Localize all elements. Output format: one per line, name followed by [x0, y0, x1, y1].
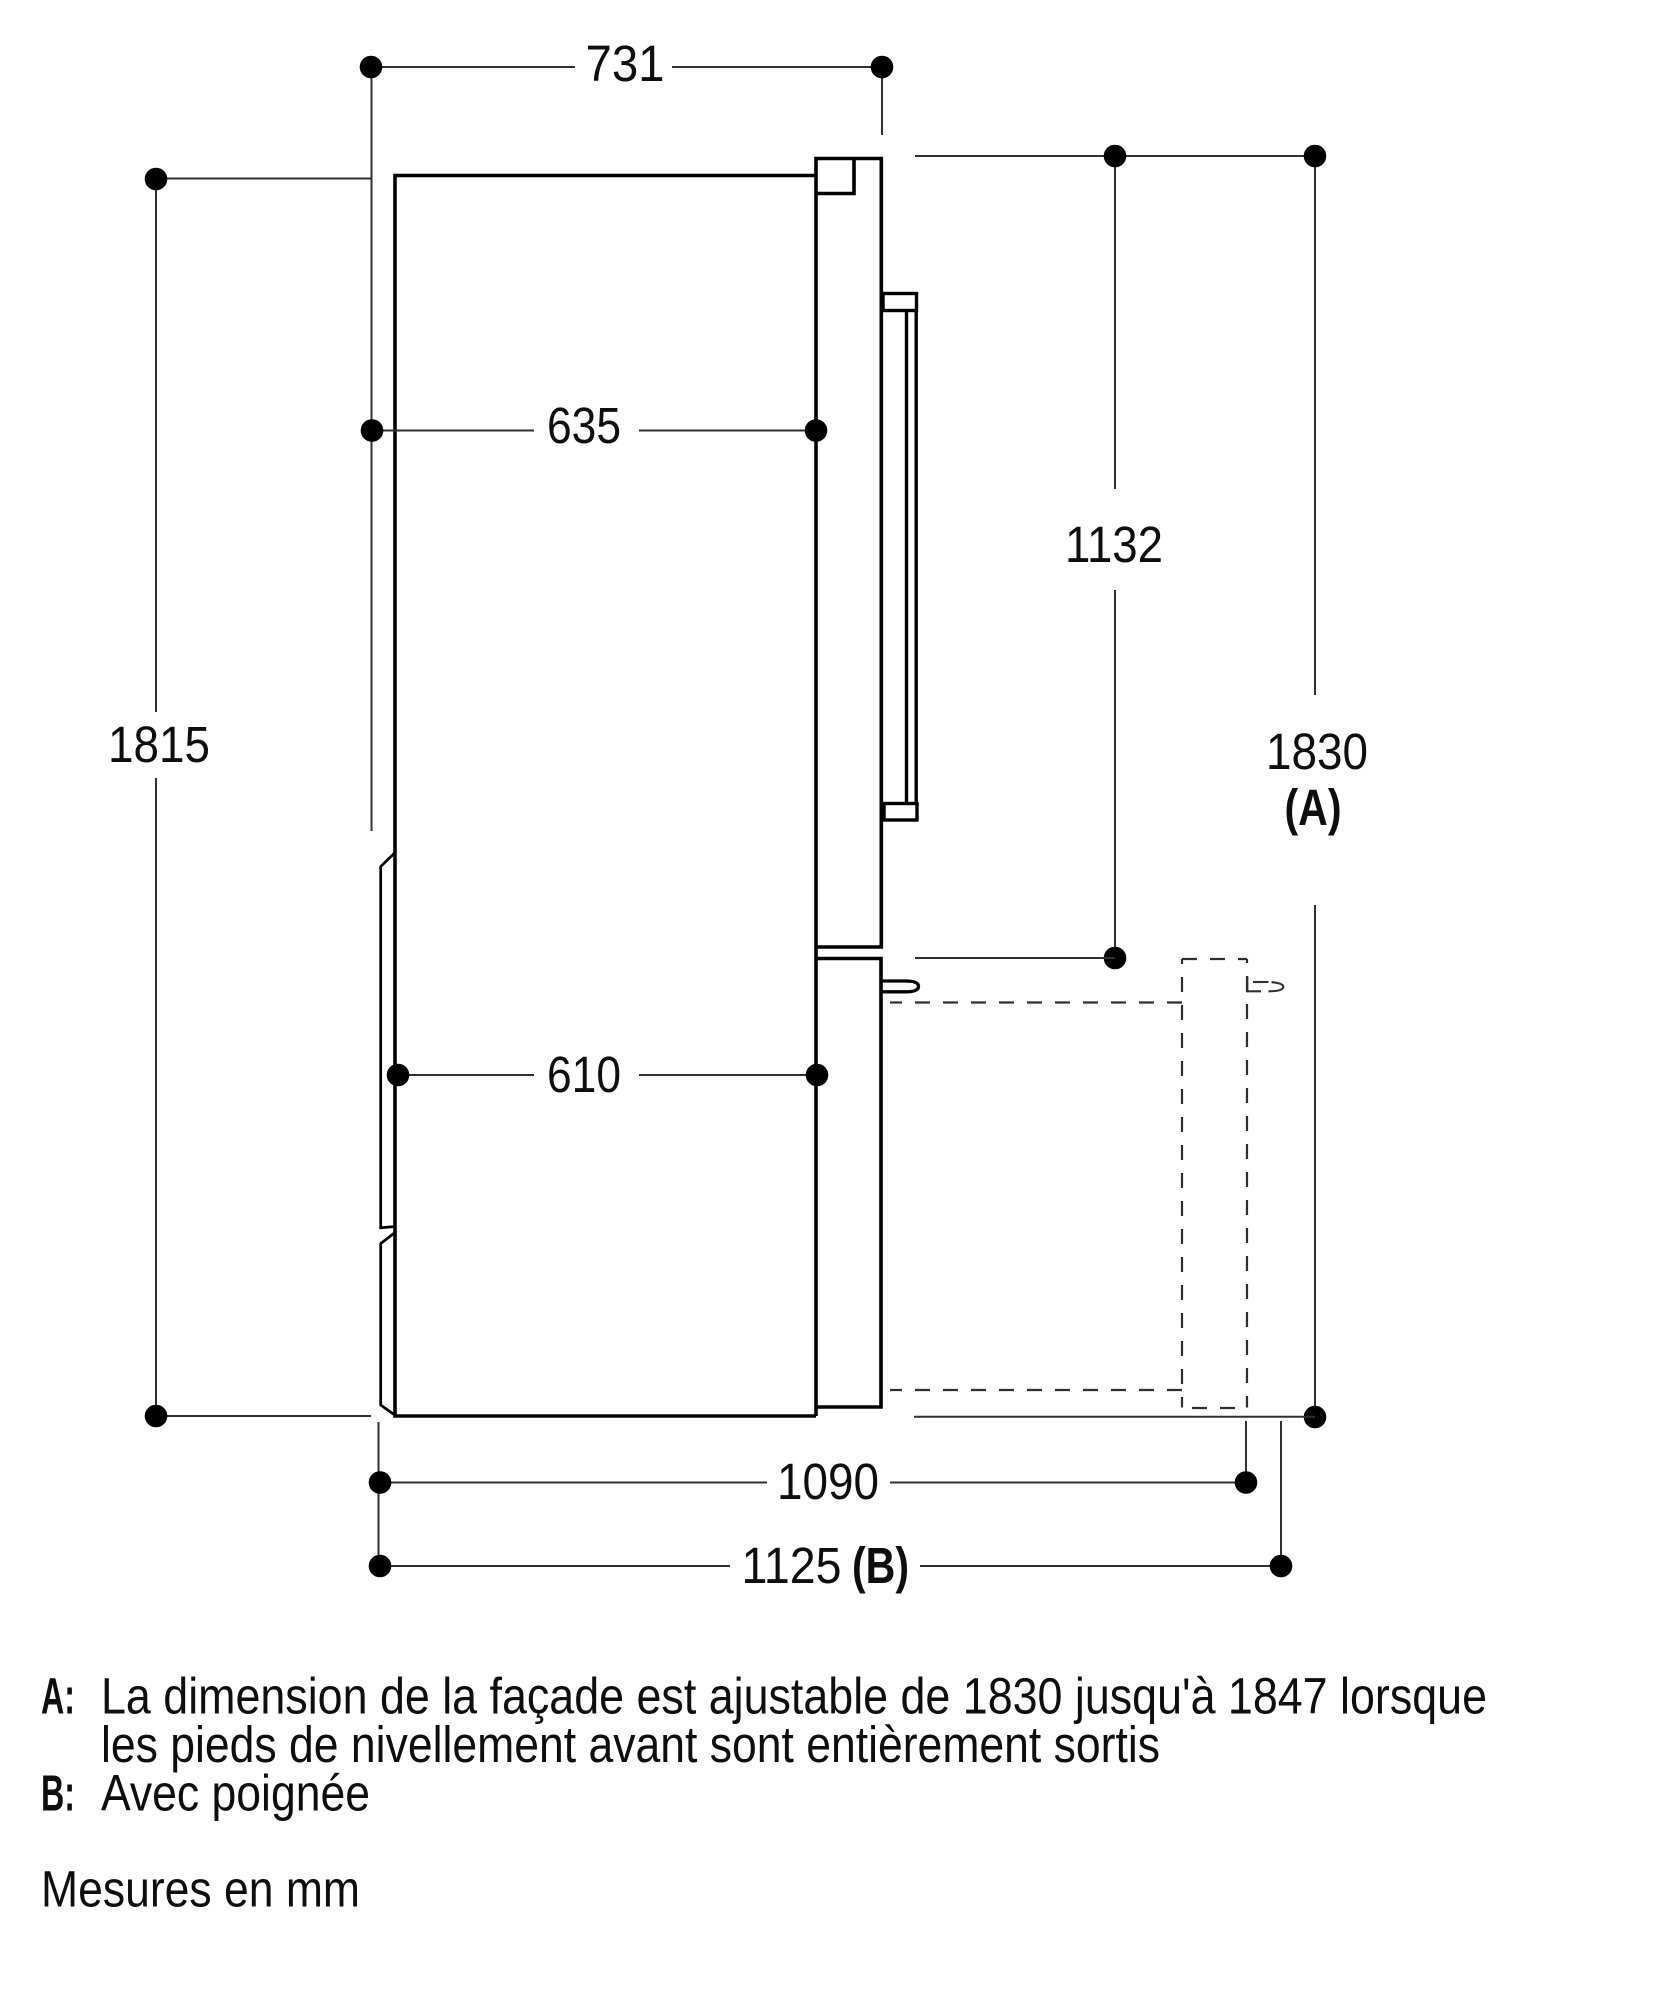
- svg-text:(A): (A): [1285, 779, 1342, 836]
- svg-text:1815: 1815: [108, 716, 210, 773]
- svg-text:731: 731: [586, 35, 665, 92]
- svg-text:Avec poignée: Avec poignée: [101, 1765, 370, 1822]
- svg-text:Mesures en mm: Mesures en mm: [41, 1861, 360, 1918]
- svg-text:610: 610: [547, 1046, 621, 1103]
- svg-text:1132: 1132: [1065, 516, 1163, 573]
- svg-text:1125: 1125: [742, 1537, 842, 1594]
- svg-text:B:: B:: [41, 1765, 75, 1822]
- svg-text:1090: 1090: [777, 1453, 879, 1510]
- svg-text:635: 635: [547, 397, 621, 454]
- svg-text:1830: 1830: [1266, 723, 1368, 780]
- svg-text:A:: A:: [41, 1668, 75, 1725]
- svg-text:(B): (B): [852, 1537, 909, 1594]
